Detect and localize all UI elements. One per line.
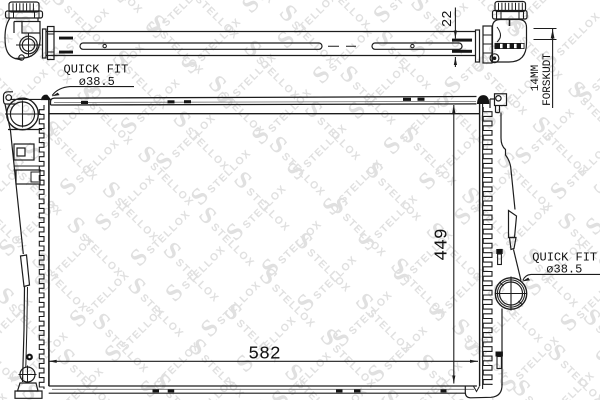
svg-text:S: S bbox=[590, 344, 600, 372]
svg-text:STELLOX: STELLOX bbox=[321, 385, 370, 400]
svg-text:STELLOX: STELLOX bbox=[0, 31, 16, 80]
svg-text:STELLOX: STELLOX bbox=[554, 10, 600, 59]
svg-text:STELLOX: STELLOX bbox=[590, 45, 600, 94]
svg-text:STELLOX: STELLOX bbox=[48, 234, 97, 283]
svg-text:STELLOX: STELLOX bbox=[433, 132, 482, 181]
svg-text:449: 449 bbox=[433, 228, 453, 260]
svg-text:FORSKUDT: FORSKUDT bbox=[542, 53, 554, 106]
svg-text:S: S bbox=[596, 0, 600, 13]
svg-text:S: S bbox=[237, 0, 265, 18]
svg-text:STELLOX: STELLOX bbox=[0, 391, 11, 400]
svg-text:STELLOX: STELLOX bbox=[256, 0, 305, 4]
svg-text:STELLOX: STELLOX bbox=[362, 61, 411, 110]
svg-text:STELLOX: STELLOX bbox=[154, 340, 203, 389]
svg-text:14MM: 14MM bbox=[530, 65, 542, 91]
svg-text:STELLOX: STELLOX bbox=[190, 375, 239, 400]
svg-text:22: 22 bbox=[440, 10, 456, 27]
svg-text:S: S bbox=[588, 172, 600, 200]
svg-text:STELLOX: STELLOX bbox=[119, 304, 168, 353]
